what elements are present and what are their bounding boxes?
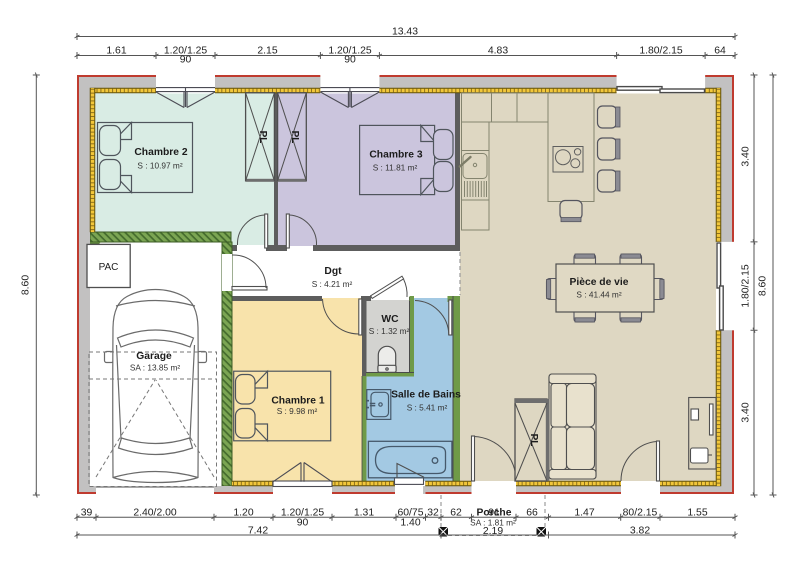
- svg-text:SA : 13.85 m²: SA : 13.85 m²: [130, 363, 181, 373]
- svg-text:S : 10.97 m²: S : 10.97 m²: [137, 161, 182, 171]
- svg-text:2.15: 2.15: [257, 46, 277, 57]
- svg-text:90: 90: [297, 518, 309, 529]
- svg-text:90: 90: [344, 55, 356, 66]
- svg-text:S : 5.41 m²: S : 5.41 m²: [407, 403, 448, 413]
- svg-text:Chambre 3: Chambre 3: [369, 150, 422, 161]
- svg-text:PL: PL: [528, 434, 539, 447]
- svg-text:3.40: 3.40: [741, 146, 752, 166]
- svg-text:1.80/2.15: 1.80/2.15: [741, 264, 752, 308]
- svg-text:PL: PL: [289, 131, 300, 144]
- svg-text:8.60: 8.60: [21, 275, 32, 295]
- svg-text:1.61: 1.61: [106, 46, 126, 57]
- svg-text:13.43: 13.43: [392, 27, 418, 38]
- svg-text:3.40: 3.40: [741, 402, 752, 422]
- svg-text:WC: WC: [381, 314, 399, 325]
- svg-text:2.40/2.00: 2.40/2.00: [133, 508, 177, 519]
- svg-text:1.31: 1.31: [354, 508, 374, 519]
- svg-text:1.80/2.15: 1.80/2.15: [639, 46, 683, 57]
- svg-text:62: 62: [450, 508, 462, 519]
- svg-text:39: 39: [81, 508, 93, 519]
- svg-text:32: 32: [427, 508, 439, 519]
- svg-text:Salle de Bains: Salle de Bains: [391, 390, 461, 401]
- svg-text:Chambre 2: Chambre 2: [134, 147, 187, 158]
- svg-text:S : 1.32 m²: S : 1.32 m²: [369, 326, 410, 336]
- svg-text:1.20: 1.20: [233, 508, 253, 519]
- svg-text:64: 64: [714, 46, 726, 57]
- svg-text:1.47: 1.47: [574, 508, 594, 519]
- svg-text:80/2.15: 80/2.15: [623, 508, 658, 519]
- svg-text:8.60: 8.60: [758, 276, 769, 296]
- svg-text:PL: PL: [257, 131, 268, 144]
- svg-text:4.83: 4.83: [488, 46, 508, 57]
- svg-text:Chambre 1: Chambre 1: [271, 396, 324, 407]
- svg-text:Garage: Garage: [136, 351, 172, 362]
- svg-text:S : 11.81 m²: S : 11.81 m²: [373, 163, 418, 173]
- svg-text:PAC: PAC: [99, 262, 119, 273]
- svg-text:66: 66: [526, 508, 538, 519]
- svg-text:S : 4.21 m²: S : 4.21 m²: [312, 279, 353, 289]
- svg-text:Pièce de vie: Pièce de vie: [570, 277, 629, 288]
- svg-text:S : 9.98 m²: S : 9.98 m²: [277, 406, 318, 416]
- svg-text:3.82: 3.82: [630, 526, 650, 537]
- svg-text:2.19: 2.19: [483, 526, 503, 537]
- svg-text:7.42: 7.42: [248, 526, 268, 537]
- svg-text:Dgt: Dgt: [324, 266, 342, 277]
- svg-text:90: 90: [180, 55, 192, 66]
- svg-text:1.40: 1.40: [400, 518, 420, 529]
- svg-text:1.55: 1.55: [687, 508, 707, 519]
- svg-text:S : 41.44 m²: S : 41.44 m²: [576, 290, 621, 300]
